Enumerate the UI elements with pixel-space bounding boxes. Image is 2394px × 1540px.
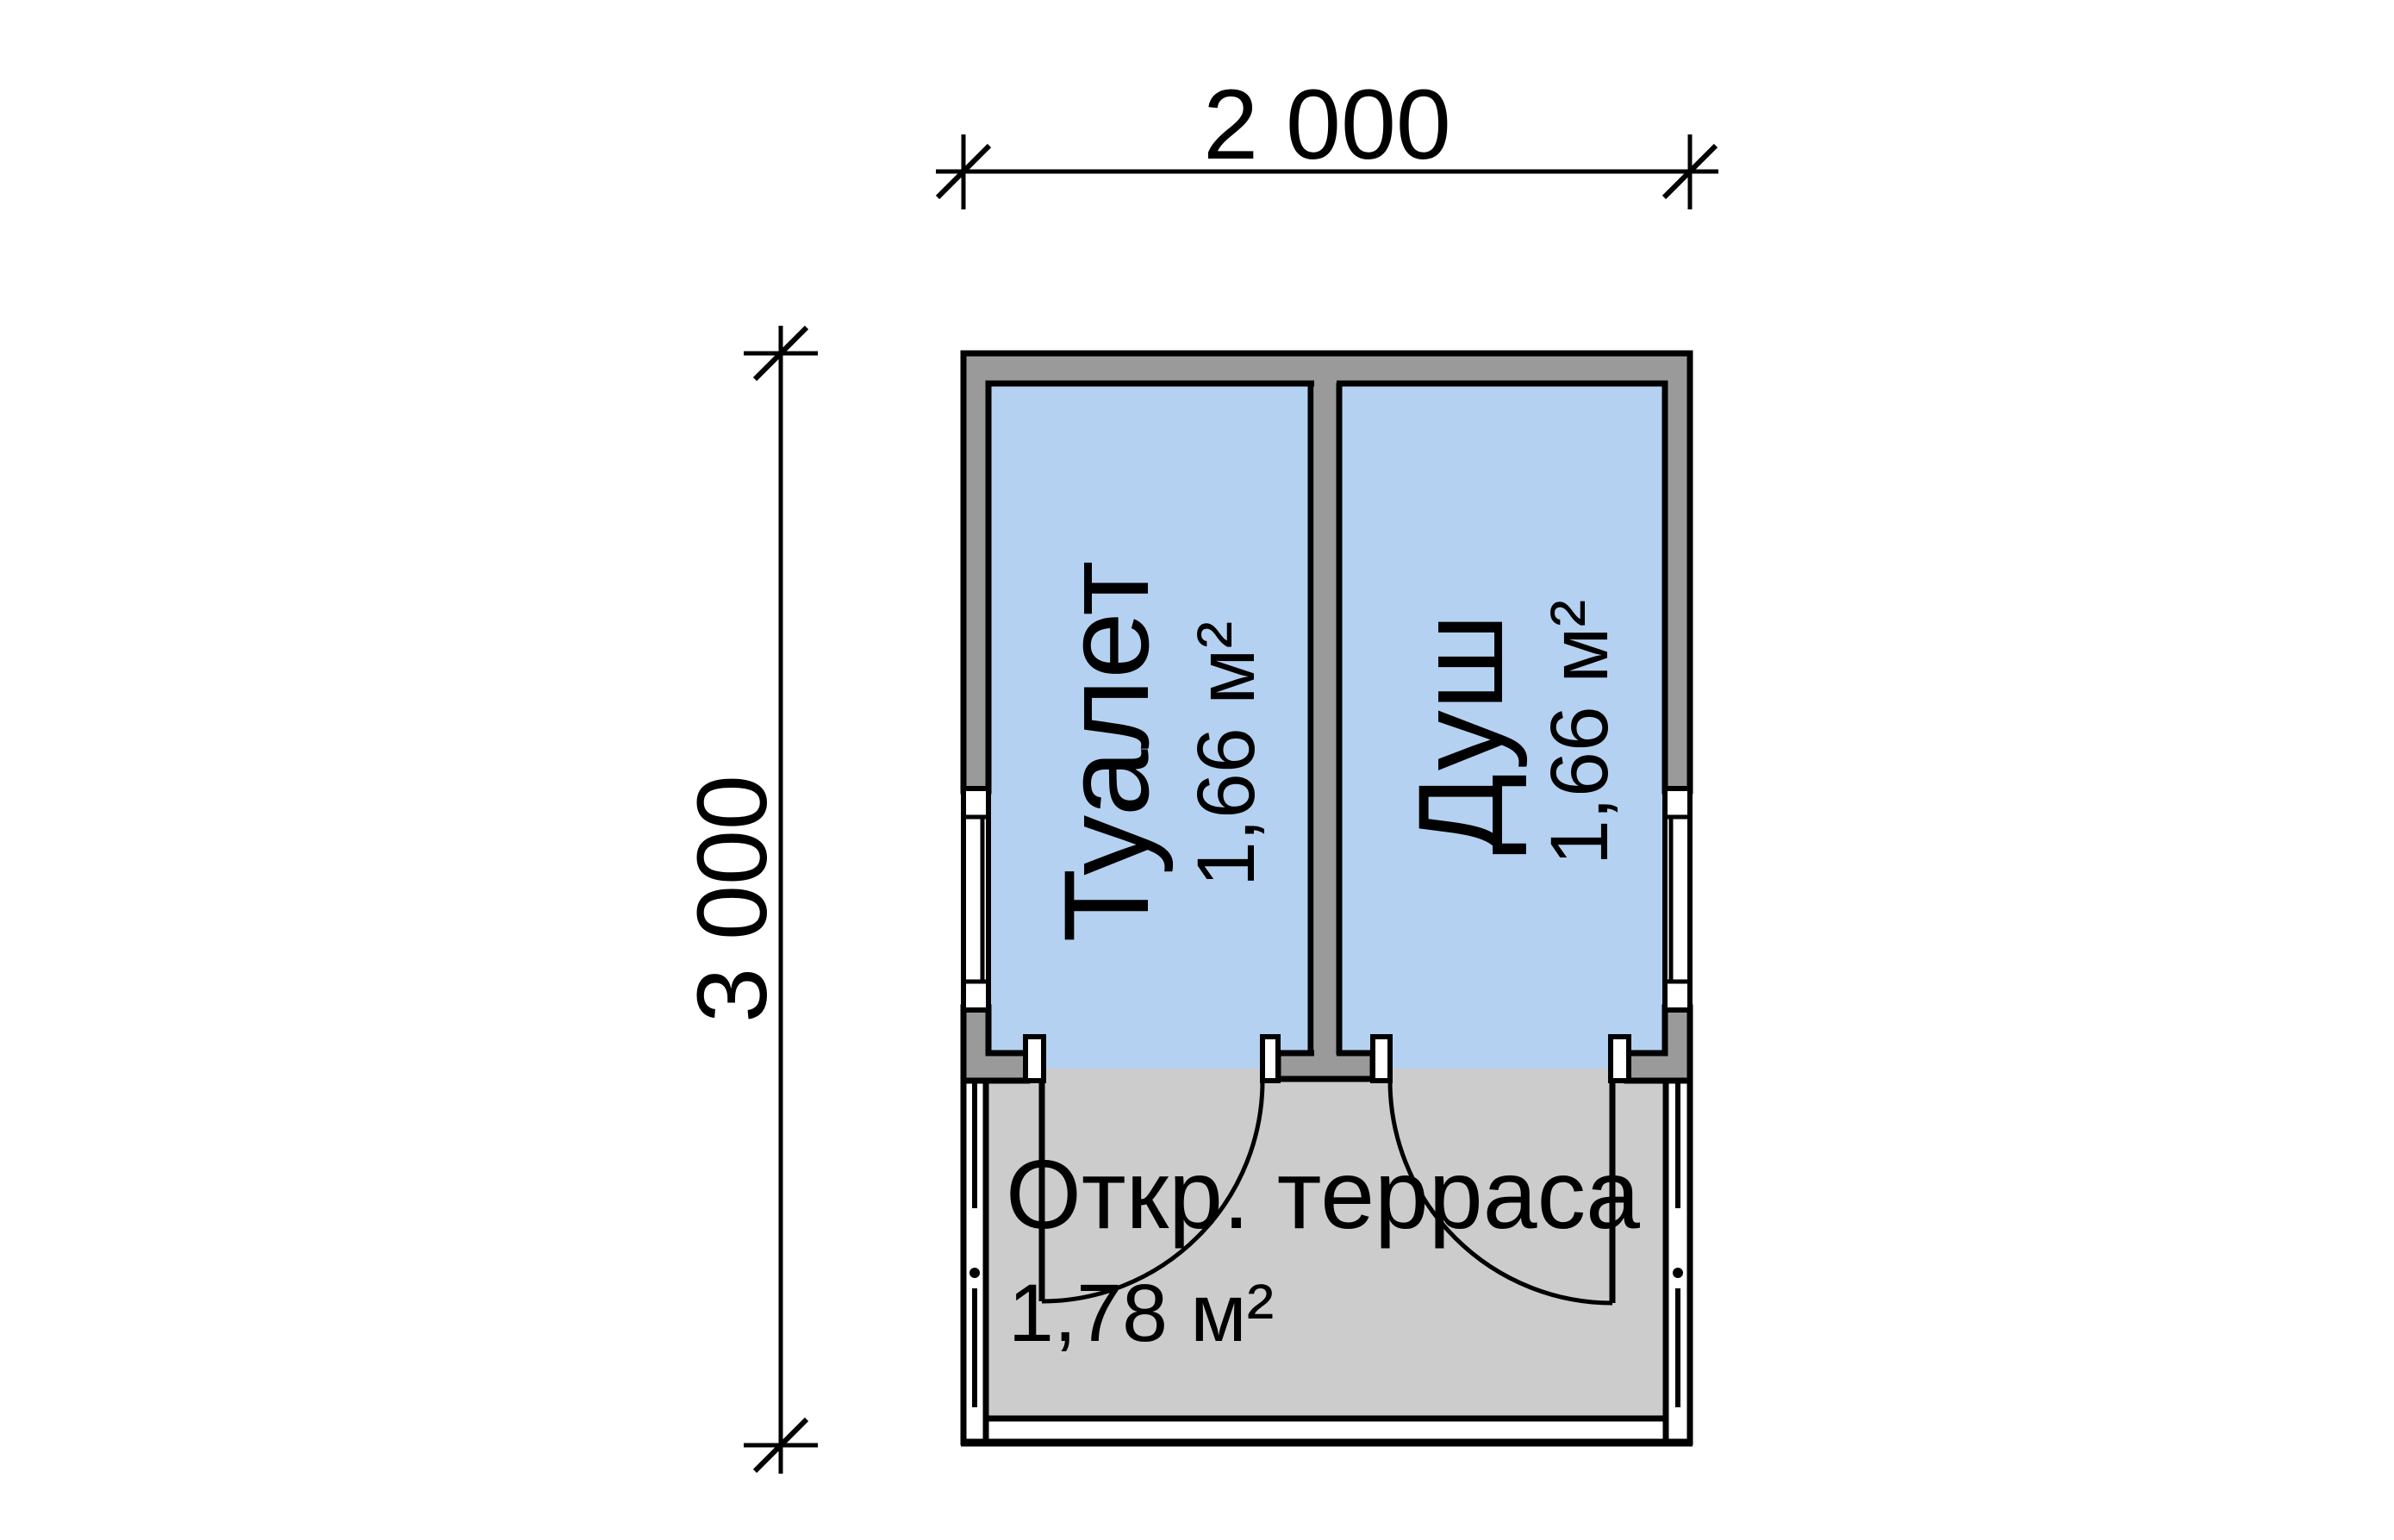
terrace-area: 1,78 м² — [1008, 1268, 1274, 1359]
shower-door-jamb-outer — [1611, 1037, 1629, 1081]
width-dimension-value: 2 000 — [1203, 70, 1451, 180]
right-window — [1665, 789, 1690, 1010]
left-window — [963, 789, 988, 1010]
height-dimension-value: 3 000 — [677, 775, 788, 1023]
partition-wall — [1314, 380, 1337, 1069]
shower-room-area: 1,66 м² — [1534, 600, 1625, 865]
floor-plan-page: Туалет 1,66 м² Душ 1,66 м² Откр. терраса… — [0, 0, 2394, 1540]
height-dimension: 3 000 — [677, 326, 818, 1474]
right-window-frame — [1665, 789, 1690, 1010]
toilet-door-jamb-outer — [1026, 1037, 1044, 1081]
shower-room-label: Душ — [1393, 614, 1528, 855]
shower-door-jamb-inner — [1373, 1037, 1390, 1081]
terrace-right-centerline-dot — [1673, 1268, 1683, 1278]
toilet-room-area: 1,66 м² — [1181, 621, 1272, 887]
toilet-door-jamb-inner — [1262, 1037, 1278, 1081]
toilet-room-label: Туалет — [1038, 561, 1174, 943]
terrace-left-centerline-dot — [969, 1268, 980, 1278]
floor-plan-drawing: Туалет 1,66 м² Душ 1,66 м² Откр. терраса… — [0, 0, 2394, 1540]
left-window-frame — [963, 789, 988, 1010]
terrace-label: Откр. терраса — [1006, 1140, 1640, 1249]
width-dimension: 2 000 — [936, 70, 1718, 209]
